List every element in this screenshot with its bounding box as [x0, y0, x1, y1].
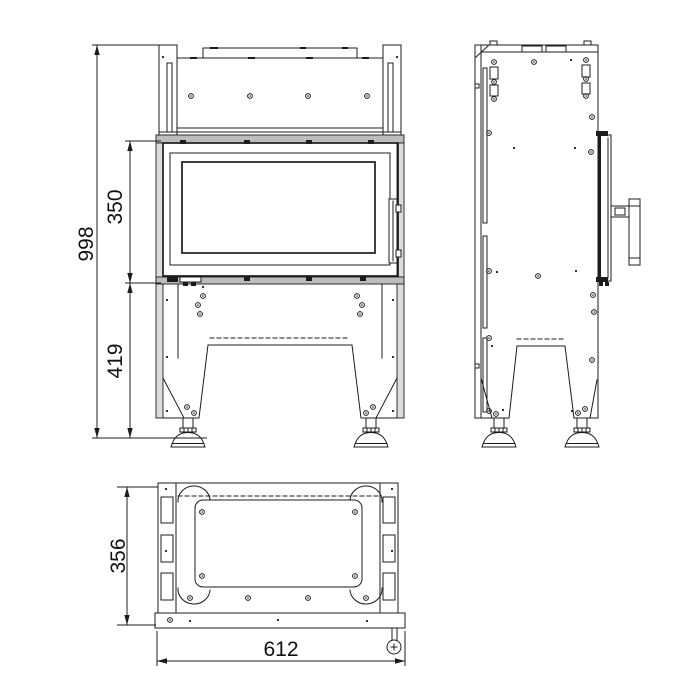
door-frame: [163, 143, 398, 276]
drawing-canvas: 998 350 419 356 612: [0, 0, 700, 700]
front-right-post: [383, 45, 401, 135]
overall-height-label: 998: [75, 226, 98, 261]
dim-overall-height: 998: [75, 45, 100, 438]
side-body: [475, 41, 598, 418]
depth-label: 356: [107, 538, 130, 573]
side-handle: [611, 199, 640, 265]
door-knob: [387, 628, 401, 654]
dim-depth: 356: [107, 487, 130, 625]
front-left-post: [159, 45, 177, 135]
front-door: [156, 135, 404, 418]
width-label: 612: [263, 638, 298, 661]
bottom-body: [158, 483, 398, 613]
adjustable-foot: [171, 418, 205, 447]
door-section-height-label: 350: [104, 189, 127, 224]
front-view: [156, 45, 404, 447]
inner-panel: [195, 500, 362, 587]
handle-bar: [629, 199, 640, 265]
adjustable-foot: [354, 418, 388, 447]
adjustable-foot: [482, 418, 516, 447]
bottom-front-plate: [155, 613, 405, 628]
dim-base-height: 419: [104, 283, 133, 438]
glass-panel: [182, 162, 375, 253]
adjustable-foot: [565, 418, 599, 447]
front-top-section: [159, 45, 401, 135]
front-base: [163, 284, 397, 418]
side-door-profile: [596, 131, 611, 286]
side-view: [475, 41, 640, 447]
side-feet: [482, 418, 599, 447]
front-feet: [171, 418, 388, 447]
dim-door-height: 350: [104, 141, 133, 283]
technical-drawing: 998 350 419 356 612: [0, 0, 700, 700]
dim-width: 612: [157, 638, 405, 664]
bottom-view: [155, 483, 405, 654]
base-section-height-label: 419: [104, 343, 127, 378]
foot-arc: [178, 588, 210, 604]
